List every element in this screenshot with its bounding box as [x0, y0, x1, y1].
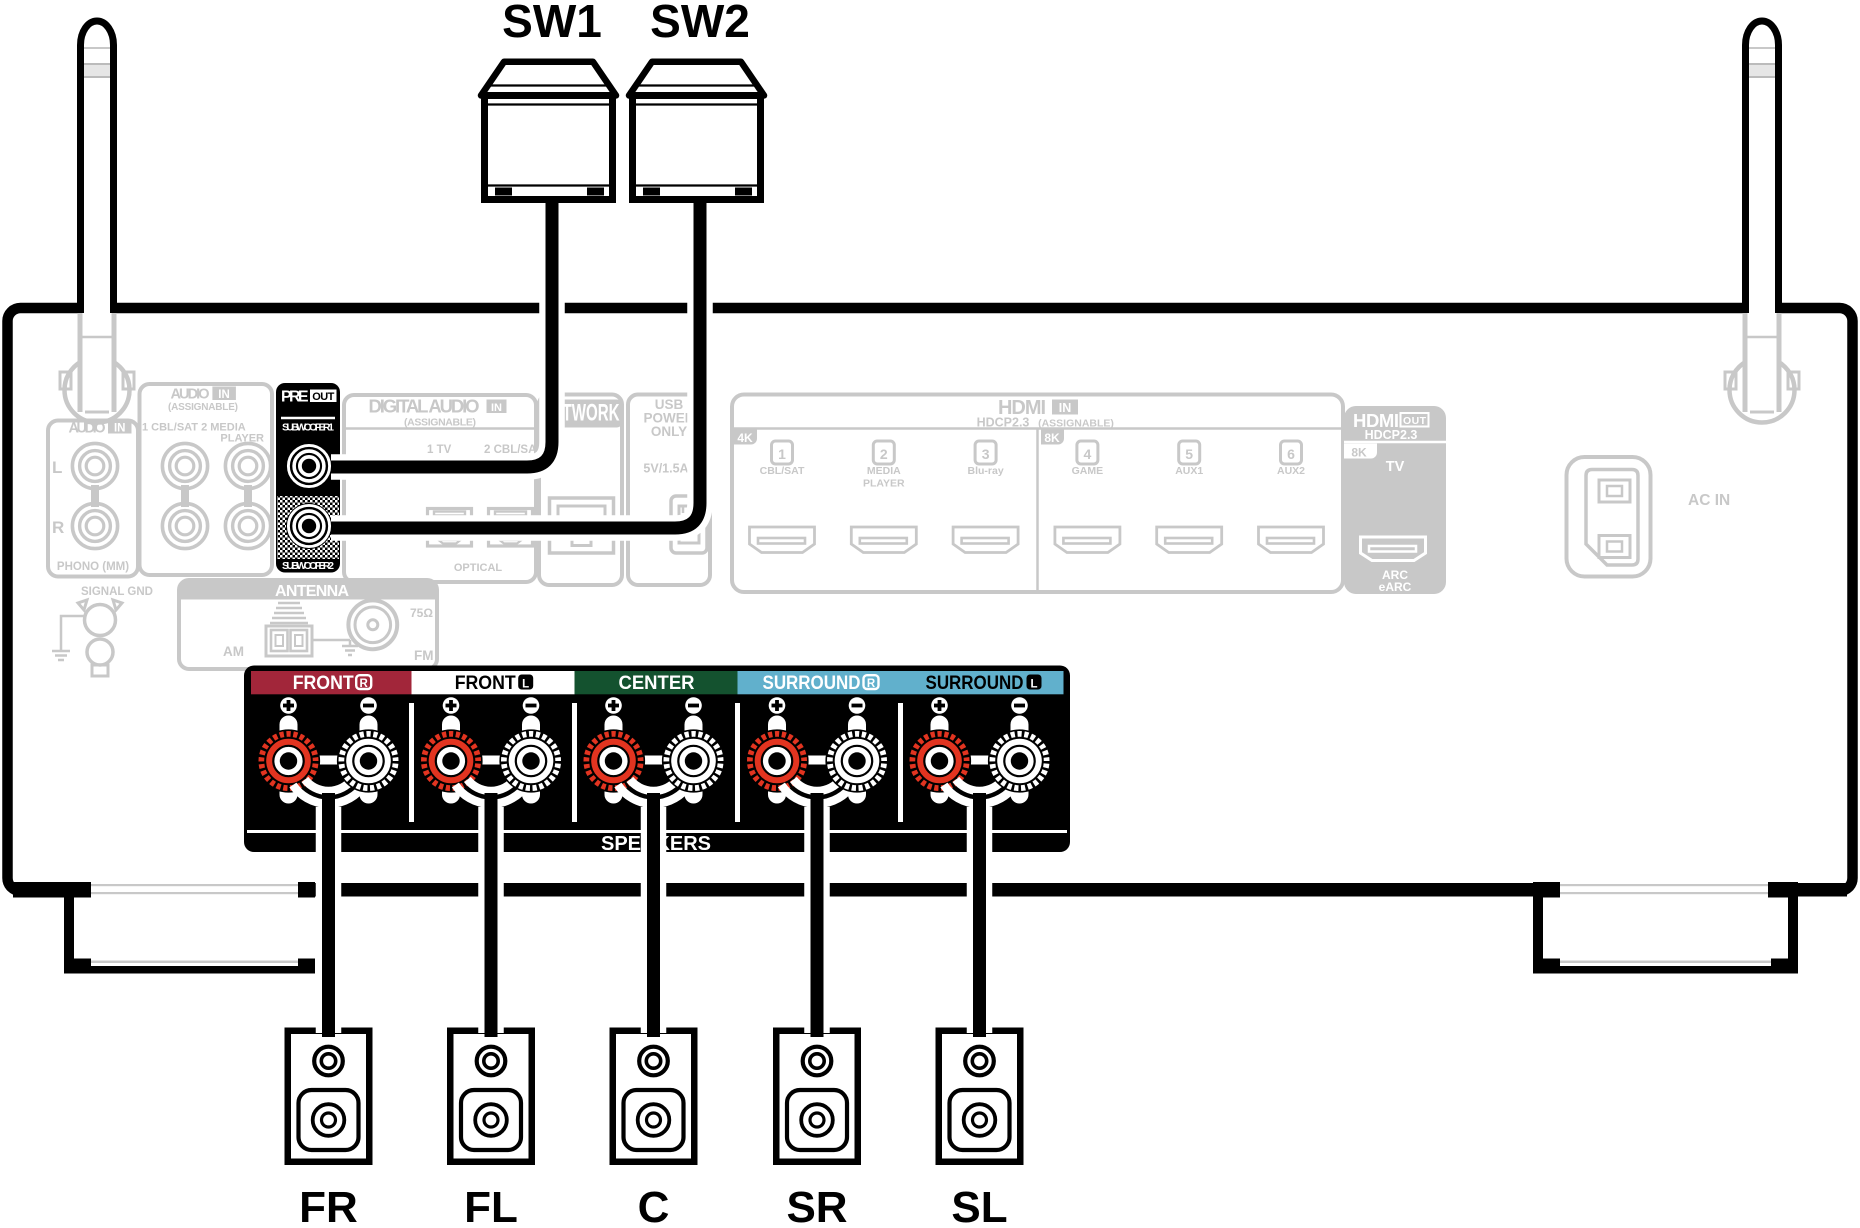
svg-text:R: R	[867, 678, 876, 690]
svg-text:OUT: OUT	[312, 391, 334, 403]
svg-text:(ASSIGNABLE): (ASSIGNABLE)	[168, 402, 238, 413]
svg-text:SW1: SW1	[502, 0, 602, 47]
svg-text:SUBWOOFER 2: SUBWOOFER 2	[282, 560, 334, 572]
svg-text:IN: IN	[114, 423, 126, 435]
svg-text:PLAYER: PLAYER	[863, 478, 905, 490]
svg-text:eARC: eARC	[1379, 580, 1412, 594]
svg-text:3: 3	[982, 446, 990, 462]
svg-text:L: L	[1030, 678, 1037, 690]
svg-text:AM: AM	[223, 644, 244, 659]
svg-text:AUX1: AUX1	[1175, 465, 1203, 477]
svg-text:FRONT: FRONT	[455, 673, 516, 694]
svg-text:SL: SL	[951, 1183, 1007, 1228]
svg-text:IN: IN	[1059, 401, 1072, 415]
svg-text:AC IN: AC IN	[1688, 492, 1730, 509]
svg-text:FR: FR	[299, 1183, 358, 1228]
svg-text:SW2: SW2	[650, 0, 750, 47]
svg-text:6: 6	[1287, 446, 1295, 462]
svg-text:SUBWOOFER 1: SUBWOOFER 1	[282, 422, 334, 434]
svg-text:PHONO (MM): PHONO (MM)	[57, 561, 129, 573]
svg-text:OPTICAL: OPTICAL	[454, 562, 503, 574]
svg-text:HDCP2.3: HDCP2.3	[1365, 428, 1418, 442]
svg-text:SIGNAL GND: SIGNAL GND	[81, 586, 153, 598]
svg-text:Blu-ray: Blu-ray	[968, 465, 1004, 477]
svg-text:AUDIO: AUDIO	[171, 387, 210, 403]
svg-text:FL: FL	[464, 1183, 518, 1228]
svg-text:4K: 4K	[737, 431, 753, 445]
svg-text:OUT: OUT	[1403, 415, 1427, 427]
svg-text:ONLY: ONLY	[651, 424, 687, 439]
svg-text:CENTER: CENTER	[619, 673, 695, 694]
svg-text:L: L	[522, 678, 529, 690]
svg-text:FM: FM	[414, 648, 434, 663]
svg-text:IN: IN	[491, 402, 502, 414]
svg-text:AUX2: AUX2	[1277, 465, 1305, 477]
svg-text:TV: TV	[1386, 459, 1405, 475]
svg-text:1: 1	[778, 446, 786, 462]
svg-text:5V/1.5A: 5V/1.5A	[643, 462, 688, 476]
svg-text:8K: 8K	[1044, 431, 1060, 445]
svg-text:8K: 8K	[1351, 446, 1367, 460]
svg-text:1 TV: 1 TV	[427, 444, 452, 456]
svg-text:FRONT: FRONT	[293, 673, 354, 694]
svg-text:SR: SR	[786, 1183, 847, 1228]
svg-text:(ASSIGNABLE): (ASSIGNABLE)	[404, 417, 476, 429]
svg-text:SURROUND: SURROUND	[763, 673, 861, 694]
svg-text:L: L	[52, 458, 62, 477]
svg-text:IN: IN	[218, 389, 230, 401]
svg-text:R: R	[360, 678, 369, 690]
svg-text:75Ω: 75Ω	[410, 606, 433, 620]
svg-text:SURROUND: SURROUND	[926, 673, 1024, 694]
svg-text:ANTENNA: ANTENNA	[275, 583, 349, 600]
svg-text:4: 4	[1084, 446, 1092, 462]
svg-text:PRE: PRE	[281, 389, 309, 406]
svg-text:5: 5	[1185, 446, 1193, 462]
svg-text:MEDIA: MEDIA	[867, 465, 901, 477]
svg-text:CBL/SAT: CBL/SAT	[760, 465, 805, 477]
svg-text:R: R	[52, 518, 64, 537]
svg-text:GAME: GAME	[1072, 465, 1104, 477]
svg-text:C: C	[638, 1183, 670, 1228]
svg-text:2: 2	[880, 446, 888, 462]
svg-text:DIGITAL AUDIO: DIGITAL AUDIO	[369, 396, 480, 417]
